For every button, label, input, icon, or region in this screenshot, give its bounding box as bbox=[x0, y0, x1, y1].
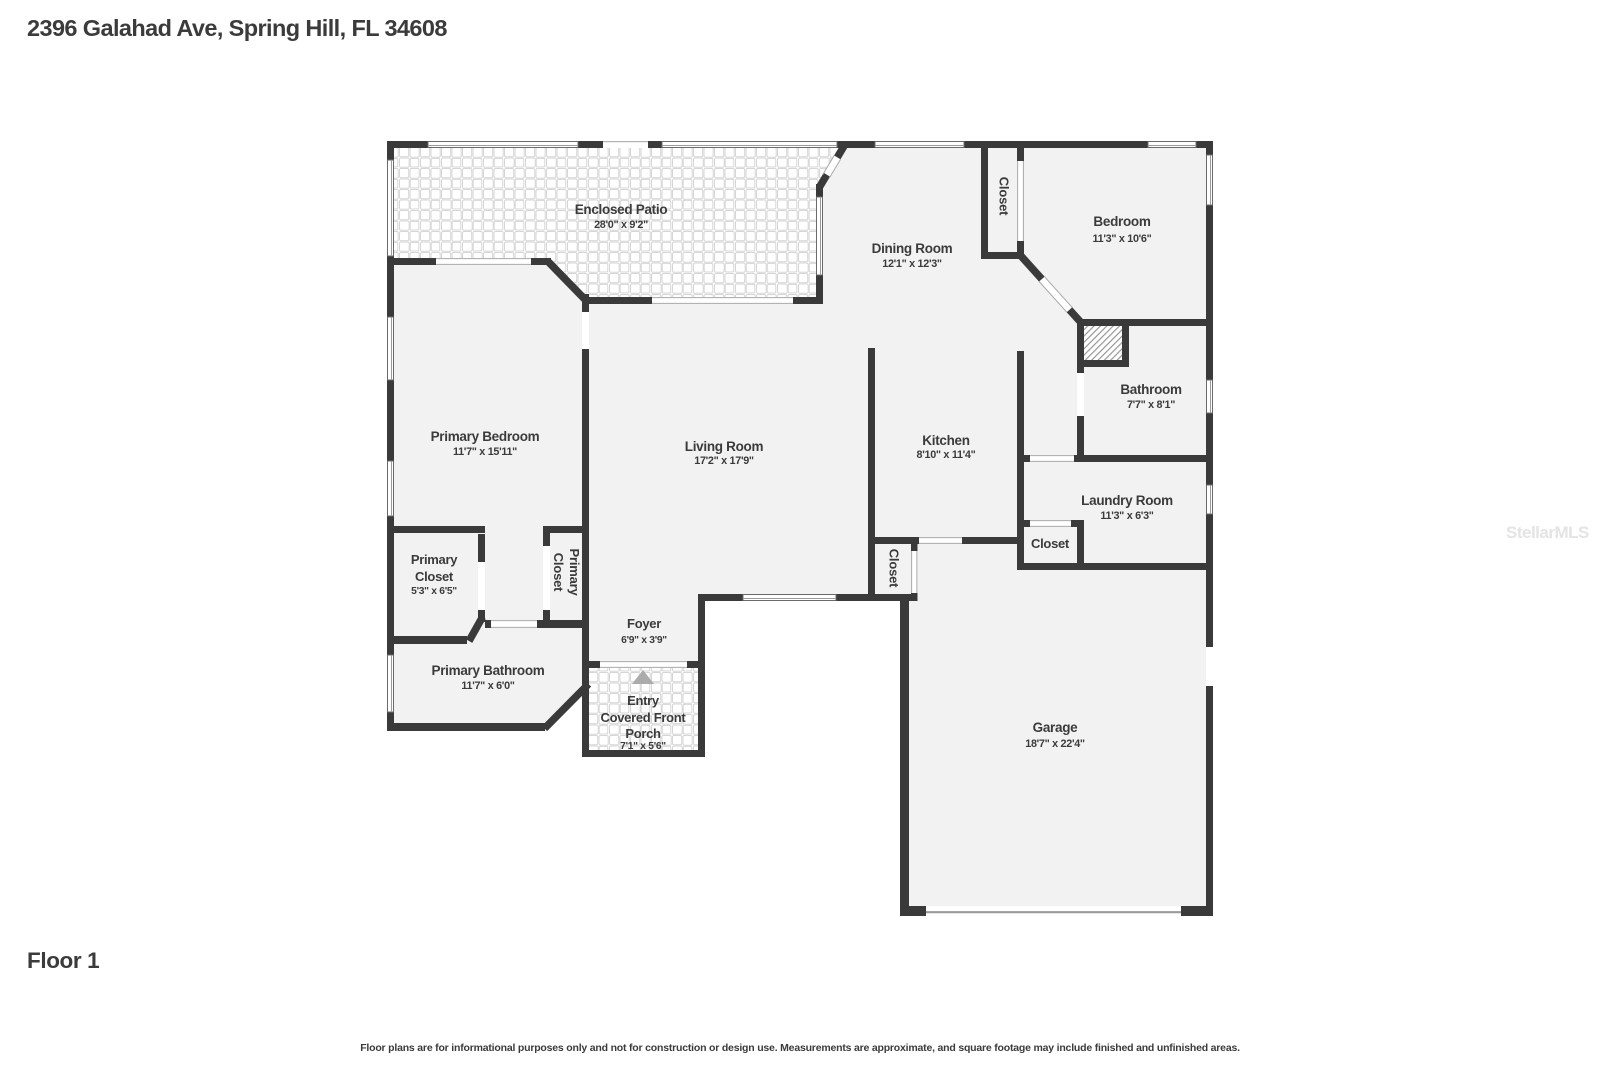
svg-text:11'7" x 15'11": 11'7" x 15'11" bbox=[453, 446, 517, 458]
svg-text:Closet: Closet bbox=[997, 177, 1012, 216]
svg-text:Closet: Closet bbox=[1031, 536, 1070, 551]
svg-text:Dining Room: Dining Room bbox=[872, 241, 953, 256]
svg-text:Primary: Primary bbox=[411, 552, 458, 567]
svg-text:StellarMLS: StellarMLS bbox=[1506, 523, 1589, 542]
svg-text:Floor plans are for informatio: Floor plans are for informational purpos… bbox=[360, 1042, 1240, 1054]
svg-text:5'3" x 6'5": 5'3" x 6'5" bbox=[411, 586, 457, 597]
svg-text:11'3" x 6'3": 11'3" x 6'3" bbox=[1100, 510, 1153, 522]
svg-text:6'9" x 3'9": 6'9" x 3'9" bbox=[621, 635, 667, 646]
svg-text:Closet: Closet bbox=[551, 553, 566, 592]
svg-text:Kitchen: Kitchen bbox=[922, 433, 969, 448]
svg-text:Living Room: Living Room bbox=[685, 439, 764, 454]
svg-text:28'0" x 9'2": 28'0" x 9'2" bbox=[594, 219, 648, 231]
svg-text:11'7" x 6'0": 11'7" x 6'0" bbox=[461, 680, 514, 692]
svg-text:12'1" x 12'3": 12'1" x 12'3" bbox=[882, 258, 942, 270]
svg-text:Bathroom: Bathroom bbox=[1120, 382, 1182, 397]
svg-text:Primary Bathroom: Primary Bathroom bbox=[432, 663, 545, 678]
svg-text:8'10" x 11'4": 8'10" x 11'4" bbox=[917, 449, 976, 461]
svg-text:17'2" x 17'9": 17'2" x 17'9" bbox=[694, 455, 754, 467]
svg-text:Covered Front: Covered Front bbox=[601, 710, 687, 725]
svg-text:7'7" x 8'1": 7'7" x 8'1" bbox=[1127, 399, 1175, 411]
svg-text:Laundry Room: Laundry Room bbox=[1081, 493, 1173, 508]
svg-text:Closet: Closet bbox=[887, 549, 902, 588]
svg-text:Primary Bedroom: Primary Bedroom bbox=[431, 429, 540, 444]
svg-text:11'3" x 10'6": 11'3" x 10'6" bbox=[1093, 233, 1152, 245]
svg-text:2396 Galahad Ave, Spring Hill,: 2396 Galahad Ave, Spring Hill, FL 34608 bbox=[27, 15, 447, 41]
svg-text:Bedroom: Bedroom bbox=[1093, 214, 1150, 229]
svg-text:18'7" x 22'4": 18'7" x 22'4" bbox=[1025, 738, 1085, 750]
svg-text:Foyer: Foyer bbox=[627, 616, 661, 631]
svg-text:7'1" x 5'6": 7'1" x 5'6" bbox=[620, 741, 666, 752]
svg-text:Entry: Entry bbox=[627, 693, 660, 708]
svg-text:Primary: Primary bbox=[567, 548, 582, 596]
svg-text:Floor 1: Floor 1 bbox=[27, 948, 99, 973]
svg-text:Garage: Garage bbox=[1033, 720, 1079, 735]
svg-text:Closet: Closet bbox=[415, 569, 454, 584]
svg-text:Porch: Porch bbox=[625, 726, 661, 741]
svg-text:Enclosed Patio: Enclosed Patio bbox=[575, 202, 668, 217]
